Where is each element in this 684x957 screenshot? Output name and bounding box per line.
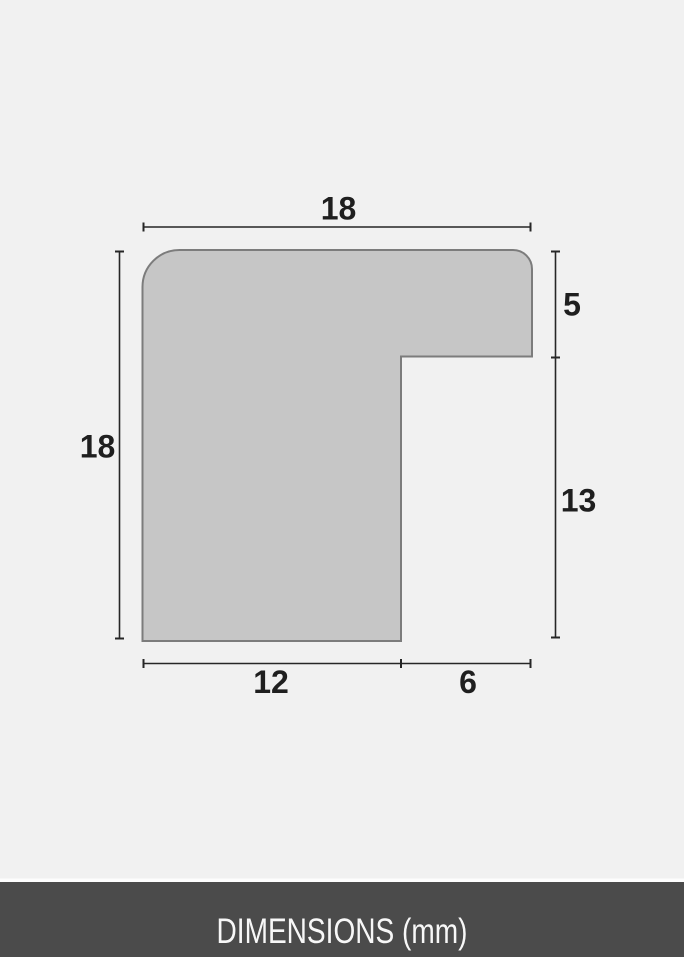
svg-text:12: 12 xyxy=(253,664,289,700)
svg-text:18: 18 xyxy=(321,191,357,227)
svg-text:13: 13 xyxy=(561,483,597,519)
svg-text:5: 5 xyxy=(563,287,581,323)
svg-text:18: 18 xyxy=(80,429,116,465)
svg-text:DIMENSIONS (mm): DIMENSIONS (mm) xyxy=(217,911,468,951)
svg-text:6: 6 xyxy=(459,664,477,700)
